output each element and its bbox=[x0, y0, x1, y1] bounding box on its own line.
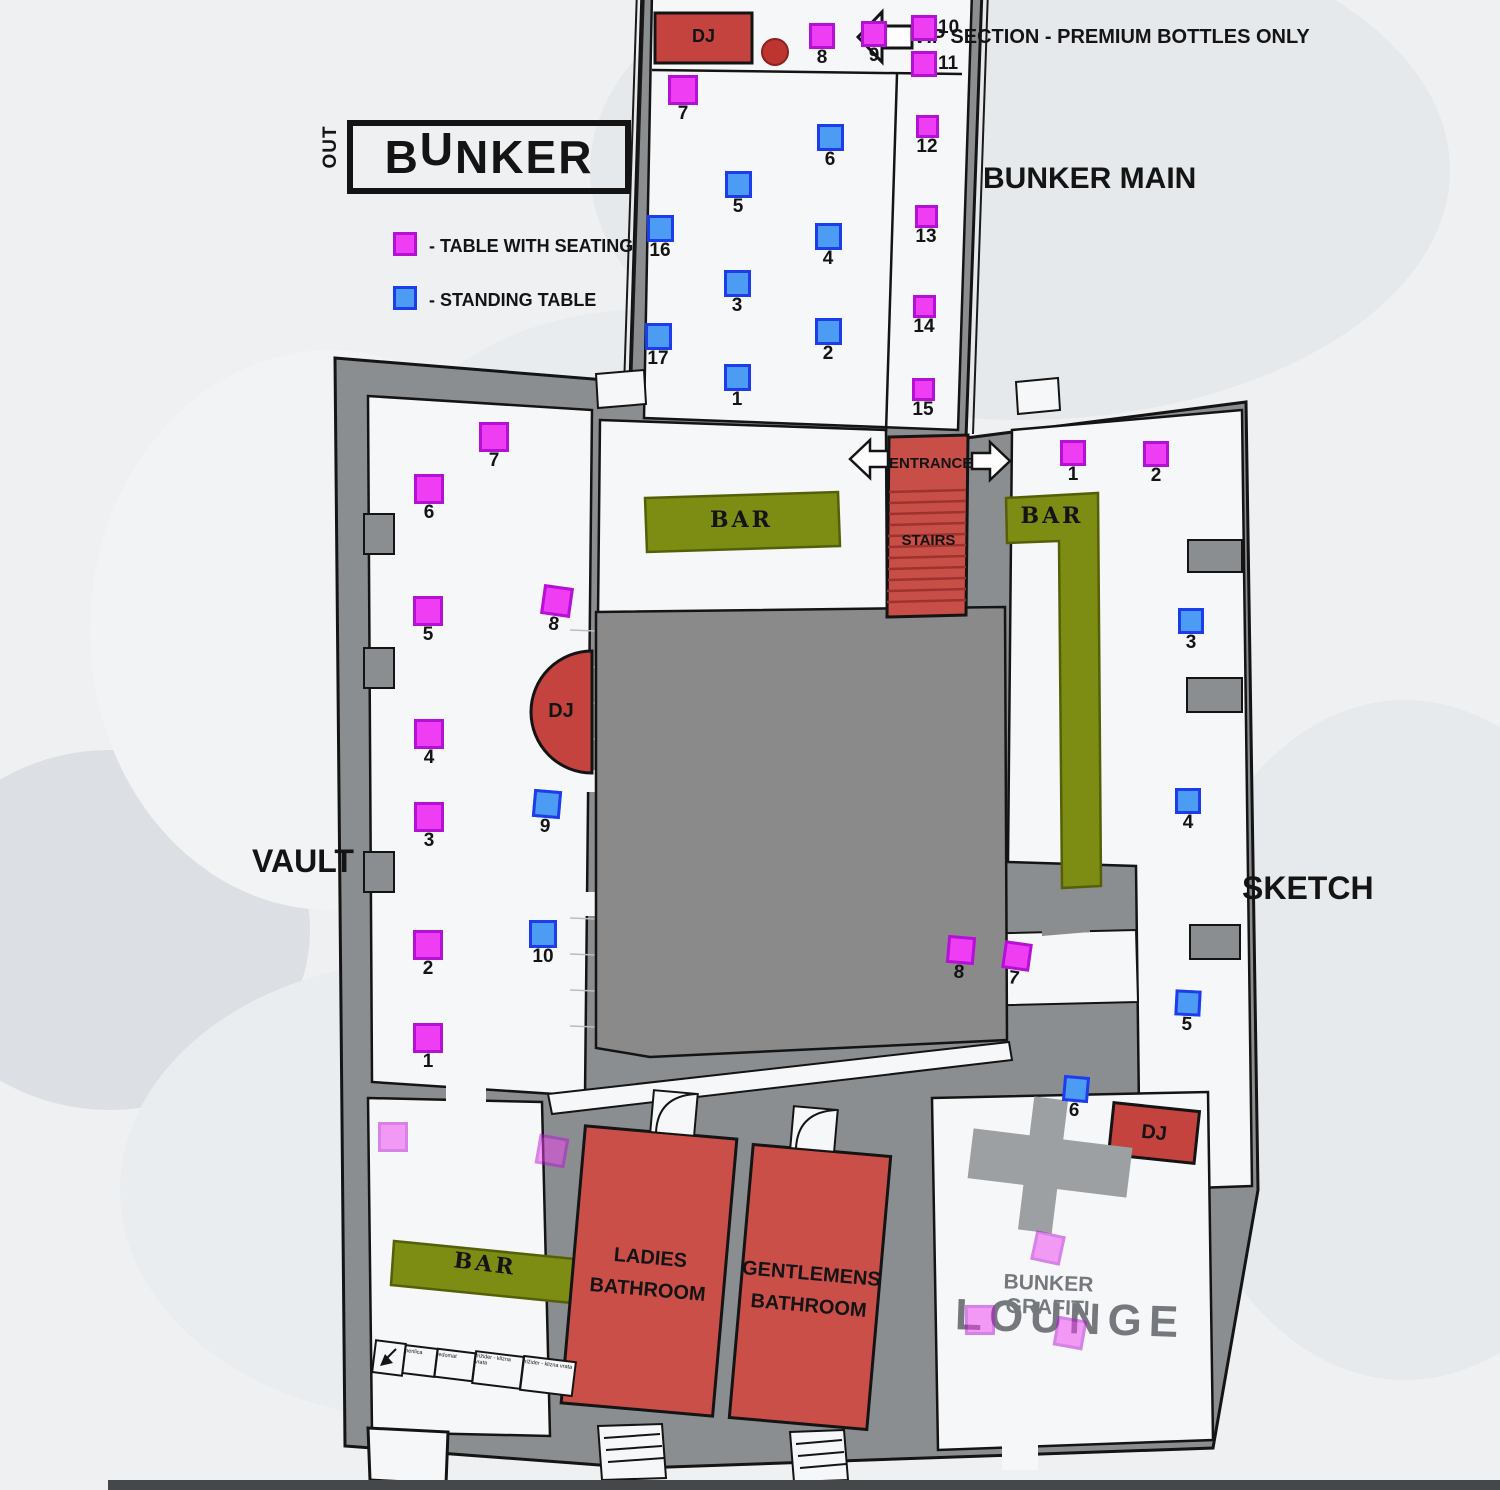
table-number: 6 bbox=[825, 149, 836, 171]
faded-table-lounge bbox=[1053, 1316, 1088, 1351]
table-sketch-4: 4 bbox=[1175, 788, 1201, 814]
table-number: 4 bbox=[424, 747, 435, 769]
table-number: 10 bbox=[532, 946, 553, 968]
table-number: 14 bbox=[913, 316, 934, 338]
bathroom-door-nook bbox=[650, 1090, 697, 1136]
table-sketch-7: 7 bbox=[1001, 940, 1033, 972]
table-number: 9 bbox=[869, 45, 880, 67]
pilaster bbox=[1187, 678, 1242, 712]
legend-standing-swatch bbox=[393, 286, 417, 310]
table-number: 9 bbox=[539, 815, 551, 838]
table-bunker-main-16: 16 bbox=[647, 215, 674, 242]
section-label-sketch: SKETCH bbox=[1242, 870, 1374, 907]
table-number: 10 bbox=[938, 17, 959, 39]
door-opening bbox=[596, 370, 646, 408]
dj-main-label: DJ bbox=[655, 26, 752, 47]
table-bunker-main-15: 15 bbox=[912, 378, 935, 401]
bar-sketch-label: BAR bbox=[1004, 504, 1100, 529]
table-bunker-main-12: 12 bbox=[916, 115, 939, 138]
section-label-bunker-main: BUNKER MAIN bbox=[983, 162, 1196, 197]
table-number: 13 bbox=[915, 226, 936, 248]
stairs-label: STAIRS bbox=[889, 532, 968, 549]
legend-seating-swatch bbox=[393, 232, 417, 256]
table-number: 6 bbox=[1068, 1099, 1080, 1122]
table-number: 6 bbox=[424, 502, 435, 524]
table-number: 1 bbox=[732, 389, 743, 411]
table-sketch-1: 1 bbox=[1060, 440, 1086, 466]
dj-vault-label: DJ bbox=[532, 700, 590, 723]
table-number: 4 bbox=[823, 248, 834, 270]
table-number: 1 bbox=[423, 1051, 434, 1073]
dj-stool bbox=[762, 39, 788, 65]
table-number: 8 bbox=[817, 47, 828, 69]
table-bunker-main-2: 2 bbox=[815, 318, 842, 345]
pilaster bbox=[1188, 540, 1242, 572]
table-sketch-6: 6 bbox=[1062, 1075, 1090, 1103]
faded-table-bottom-left bbox=[378, 1122, 408, 1152]
table-vault-3: 3 bbox=[414, 802, 444, 832]
table-vault-10: 10 bbox=[529, 920, 557, 948]
exit-opening bbox=[1002, 1434, 1038, 1470]
table-bunker-main-17: 17 bbox=[645, 323, 672, 350]
door-opening bbox=[1016, 378, 1060, 414]
ladies-bathroom-label: LADIES BATHROOM bbox=[571, 1236, 726, 1313]
faded-table-bottom-left bbox=[535, 1134, 570, 1169]
table-bunker-main-14: 14 bbox=[913, 295, 936, 318]
table-bunker-main-1: 1 bbox=[724, 364, 751, 391]
pilaster bbox=[364, 648, 394, 688]
table-vault-8: 8 bbox=[540, 584, 574, 618]
table-number: 7 bbox=[678, 103, 689, 125]
table-vault-4: 4 bbox=[414, 719, 444, 749]
table-vault-6: 6 bbox=[414, 474, 444, 504]
central-block bbox=[596, 607, 1007, 1057]
table-sketch-8: 8 bbox=[946, 935, 976, 965]
table-number: 3 bbox=[1186, 632, 1197, 654]
gentlemens-bathroom-label: GENTLEMENS BATHROOM bbox=[734, 1252, 885, 1328]
wall-piece bbox=[1040, 890, 1090, 936]
table-sketch-3: 3 bbox=[1178, 608, 1204, 634]
logo-bunker-text: BUNKER bbox=[385, 130, 594, 184]
legend-standing-label: - STANDING TABLE bbox=[429, 290, 596, 311]
table-bunker-main-11: 11 bbox=[911, 51, 937, 77]
faded-table-lounge bbox=[965, 1305, 995, 1335]
door-opening bbox=[446, 1078, 486, 1108]
table-vault-5: 5 bbox=[413, 596, 443, 626]
logo-out-text: OUT bbox=[320, 112, 342, 182]
table-number: 8 bbox=[953, 961, 965, 984]
table-number: 2 bbox=[823, 343, 834, 365]
legend-seating-label: - TABLE WITH SEATING bbox=[429, 236, 633, 257]
table-number: 3 bbox=[424, 830, 435, 852]
exit-opening bbox=[598, 1424, 666, 1480]
table-vault-7: 7 bbox=[479, 422, 509, 452]
table-number: 4 bbox=[1183, 812, 1194, 834]
table-number: 5 bbox=[423, 624, 434, 646]
bathroom-door-nook bbox=[790, 1106, 837, 1152]
bottom-edge-bar bbox=[108, 1480, 1500, 1490]
table-bunker-main-9: 9 bbox=[861, 21, 887, 47]
entrance-label: ENTRANCE bbox=[889, 455, 968, 472]
utility-box-door bbox=[372, 1340, 406, 1375]
table-bunker-main-7: 7 bbox=[668, 75, 698, 105]
table-number: 15 bbox=[912, 399, 933, 421]
table-number: 2 bbox=[423, 958, 434, 980]
bar-main-label: BAR bbox=[645, 508, 838, 533]
club-floor-plan: OUT BUNKER - TABLE WITH SEATING - STANDI… bbox=[0, 0, 1500, 1490]
table-sketch-5: 5 bbox=[1174, 989, 1201, 1016]
table-bunker-main-4: 4 bbox=[815, 223, 842, 250]
table-number: 3 bbox=[732, 295, 743, 317]
table-vault-2: 2 bbox=[413, 930, 443, 960]
table-vault-1: 1 bbox=[413, 1023, 443, 1053]
table-bunker-main-8: 8 bbox=[809, 23, 835, 49]
table-bunker-main-5: 5 bbox=[725, 171, 752, 198]
faded-table-lounge bbox=[1030, 1230, 1066, 1266]
pilaster bbox=[364, 852, 394, 892]
vip-note: VIP SECTION - PREMIUM BOTTLES ONLY bbox=[913, 26, 1310, 49]
table-number: 7 bbox=[489, 450, 500, 472]
table-bunker-main-10: 10 bbox=[911, 15, 937, 41]
table-vault-9: 9 bbox=[532, 789, 562, 819]
pilaster bbox=[1190, 925, 1240, 959]
table-number: 16 bbox=[649, 240, 670, 262]
table-number: 1 bbox=[1068, 464, 1079, 486]
table-number: 17 bbox=[647, 348, 668, 370]
table-number: 2 bbox=[1151, 465, 1162, 487]
table-bunker-main-3: 3 bbox=[724, 270, 751, 297]
table-sketch-2: 2 bbox=[1143, 441, 1169, 467]
corner-closet bbox=[368, 1428, 448, 1484]
table-bunker-main-6: 6 bbox=[817, 124, 844, 151]
table-number: 11 bbox=[938, 53, 958, 75]
table-bunker-main-13: 13 bbox=[915, 205, 938, 228]
table-number: 5 bbox=[1181, 1014, 1193, 1037]
pilaster bbox=[364, 514, 394, 554]
table-number: 12 bbox=[916, 136, 937, 158]
table-number: 5 bbox=[733, 196, 744, 218]
logo-box: BUNKER bbox=[347, 120, 631, 194]
section-label-vault: VAULT bbox=[252, 843, 354, 880]
